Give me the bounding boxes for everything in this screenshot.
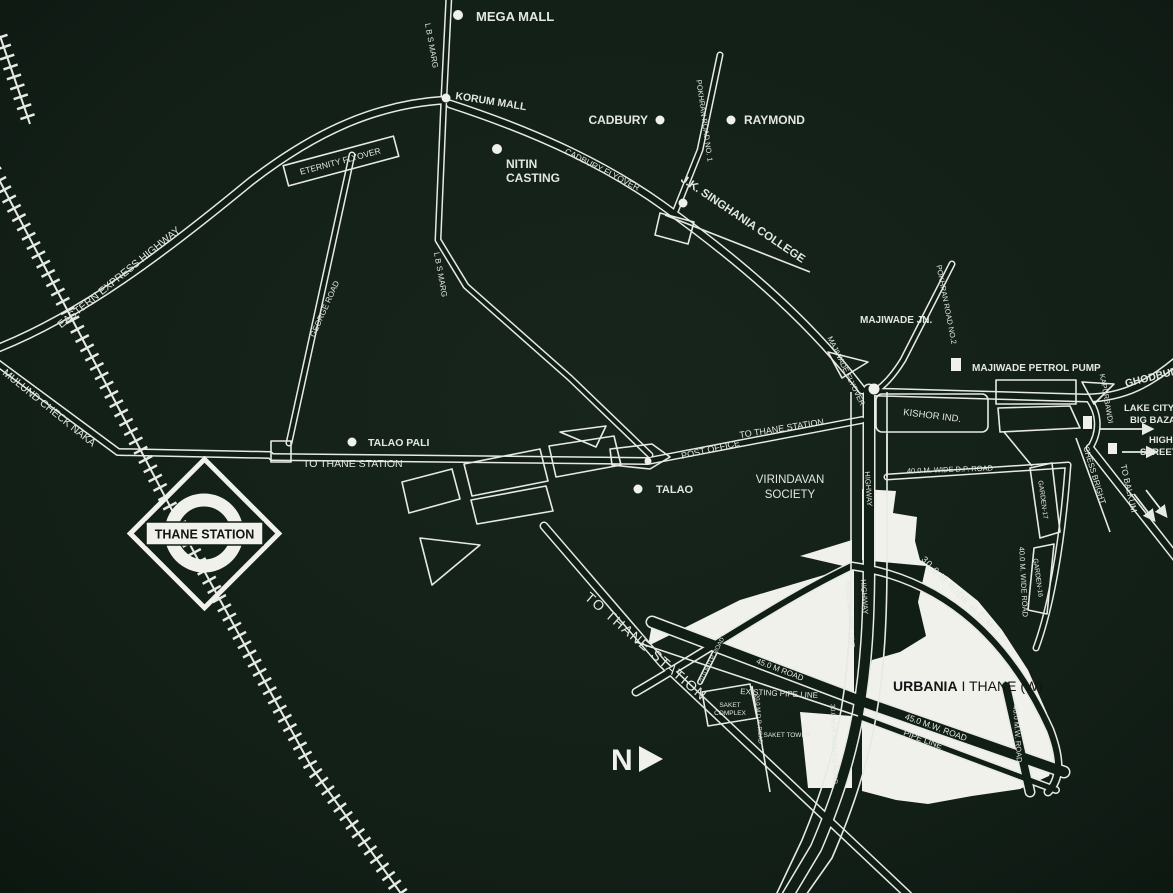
dot-post-office (645, 458, 652, 465)
label-nitin-casting-2: CASTING (506, 171, 560, 185)
label-talao: TALAO (656, 484, 694, 496)
label-saket-tower: SAKET TOWER (764, 732, 811, 739)
label-virindavan-society-2: SOCIETY (765, 489, 816, 501)
label-raymond: RAYMOND (744, 113, 805, 127)
station-name: THANE STATION (155, 528, 255, 542)
label-mega-mall: MEGA MALL (476, 9, 554, 24)
north-label: N (611, 744, 633, 777)
label-talao-pali: TALAO PALI (368, 437, 430, 449)
label-street-mall: STREET MALL (1140, 447, 1173, 458)
label-urbania-thane: URBANIA I THANE (W) (893, 678, 1043, 694)
marker-majiwade-petrol-pump (951, 358, 961, 371)
label-saket-complex-1: SAKET (719, 702, 740, 709)
label-high: HIGH (1149, 435, 1173, 446)
marker-high-street-mall (1108, 443, 1117, 454)
label-big-bazaar: BIG BAZAAR (1130, 415, 1173, 426)
location-map: THANE STATION N MEGA MALLKORUM MALLCADBU… (0, 0, 1173, 893)
dot-majiwade-jn (869, 384, 880, 395)
label-saket-complex-2: COMPLEX (714, 710, 746, 717)
marker-lake-city-mall (1083, 416, 1092, 429)
label-to-thane-station-west: TO THANE STATION (303, 458, 403, 470)
label-majiwade-jn: MAJIWADE JN. (860, 315, 932, 326)
dot-cadbury (656, 116, 665, 125)
dot-korum-mall (442, 94, 451, 103)
dot-raymond (727, 116, 736, 125)
map-svg: THANE STATION N MEGA MALLKORUM MALLCADBU… (0, 0, 1173, 893)
label-lake-city-mall: LAKE CITY MALL (1124, 403, 1173, 414)
label-nitin-casting-1: NITIN (506, 157, 537, 171)
label-virindavan-society-1: VIRINDAVAN (756, 474, 825, 486)
dot-nitin-casting (492, 144, 502, 154)
dot-talao-pali (348, 438, 357, 447)
dot-mega-mall (453, 10, 463, 20)
dot-jk-singhania-college (679, 199, 688, 208)
label-majiwade-petrol-pump: MAJIWADE PETROL PUMP (972, 363, 1101, 374)
dot-talao (634, 485, 643, 494)
label-cadbury: CADBURY (588, 113, 648, 127)
